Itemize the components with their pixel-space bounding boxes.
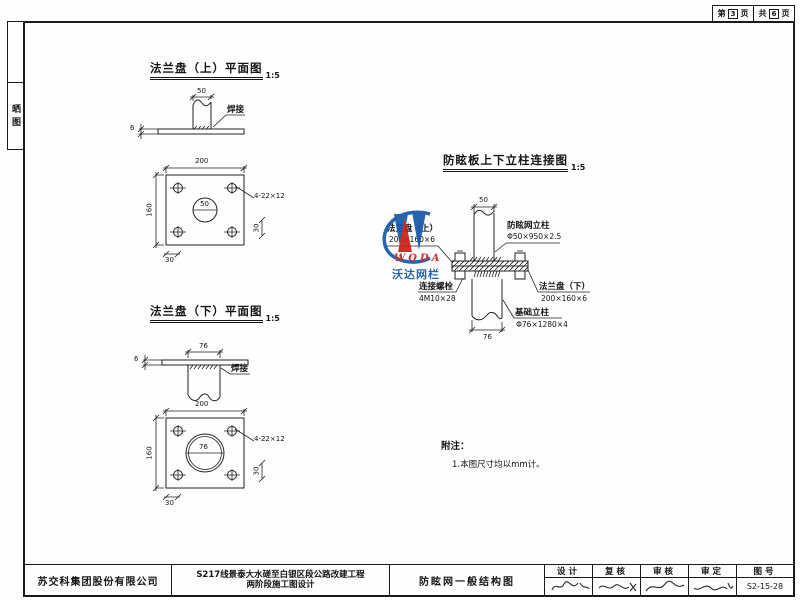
weld-label-top: 焊接 [227, 103, 244, 115]
dim-pipe-76: 76 [199, 342, 208, 350]
post-spec: Φ50×950×2.5 [507, 232, 561, 241]
holes-callout-top: 4-22×12 [254, 192, 285, 200]
flange-lower-spec: 200×160×6 [541, 294, 587, 303]
flange-top-plan-drawing [153, 165, 265, 257]
drawing-number-column: 图号 S2-15-28 [737, 565, 793, 595]
bolt-spec: 4M10×28 [419, 294, 456, 303]
flange-top-title-row: 法兰盘（上）平面图 1:5 [150, 60, 280, 80]
review-header: 审核 [641, 565, 688, 578]
dim-hole-50: 50 [200, 200, 209, 208]
dim-edge-30-hb: 30 [165, 499, 174, 507]
foundation-spec: Φ76×1280×4 [516, 320, 568, 329]
dim-plate-thickness-6b: 6 [134, 355, 138, 363]
design-column: 设计 [545, 565, 593, 595]
signature-check [595, 579, 639, 595]
connection-scale: 1:5 [571, 163, 585, 172]
connection-title: 防眩板上下立柱连接图 [443, 152, 568, 172]
signature-review [643, 579, 687, 595]
flange-bottom-plan-drawing [153, 408, 265, 500]
flange-bottom-scale: 1:5 [266, 314, 280, 323]
weld-label-bottom: 焊接 [231, 362, 248, 374]
notes-heading: 附注： [441, 438, 470, 452]
dim-edge-30-vb: 30 [252, 467, 260, 476]
dim-pipe-top-50: 50 [197, 87, 206, 95]
signature-approve [691, 579, 735, 595]
dim-plan-height-160: 160 [146, 203, 154, 216]
drawing-number-value: S2-15-28 [737, 578, 793, 595]
approve-header: 审定 [689, 565, 736, 578]
design-signature-cell [545, 578, 592, 595]
project-name-cell: S217线景泰大水磋至白银区段公路改建工程 两阶段施工图设计 [172, 565, 390, 595]
flange-top-scale: 1:5 [266, 71, 280, 80]
dim-edge-30-h: 30 [165, 256, 174, 264]
foundation-label: 基础立柱 [515, 306, 549, 318]
line-art [0, 0, 800, 600]
dim-edge-30-v: 30 [252, 224, 260, 233]
dim-plan-width-200b: 200 [195, 400, 208, 408]
check-header: 复核 [593, 565, 640, 578]
watermark-brand-en: WODA [394, 253, 442, 264]
dim-hole-76: 76 [199, 443, 208, 451]
approve-signature-cell [689, 578, 736, 595]
signature-design [547, 579, 591, 595]
flange-top-section-drawing [138, 94, 245, 139]
project-line-1: S217线景泰大水磋至白银区段公路改建工程 [196, 570, 364, 581]
flange-bottom-title: 法兰盘（下）平面图 [150, 303, 263, 323]
flange-top-title: 法兰盘（上）平面图 [150, 60, 263, 80]
company-name: 苏交科集团股份有限公司 [25, 565, 172, 595]
dim-plate-thickness-6: 6 [130, 124, 134, 132]
design-header: 设计 [545, 565, 592, 578]
dim-conn-76: 76 [483, 333, 492, 341]
drawing-number-header: 图号 [737, 565, 793, 578]
drawing-sheet: 晒图 第 3 页 共 6 页 [0, 0, 800, 600]
flange-bottom-title-row: 法兰盘（下）平面图 1:5 [150, 303, 280, 323]
dim-plan-width-200: 200 [195, 157, 208, 165]
dim-plan-height-160b: 160 [146, 446, 154, 459]
check-column: 复核 [593, 565, 641, 595]
drawing-name: 防眩网一般结构图 [390, 565, 545, 595]
review-signature-cell [641, 578, 688, 595]
notes-item-1: 1.本图尺寸均以mm计。 [452, 458, 545, 470]
flange-lower-label: 法兰盘（下） [539, 280, 590, 292]
connection-title-row: 防眩板上下立柱连接图 1:5 [443, 152, 585, 172]
review-column: 审核 [641, 565, 689, 595]
title-block: 苏交科集团股份有限公司 S217线景泰大水磋至白银区段公路改建工程 两阶段施工图… [25, 564, 793, 595]
check-signature-cell [593, 578, 640, 595]
logo-right-triangle-icon [412, 212, 426, 250]
post-label: 防眩网立柱 [507, 219, 550, 231]
flange-bottom-section-drawing [142, 349, 250, 401]
watermark-brand-cn: 沃达网栏 [392, 266, 440, 282]
approve-column: 审定 [689, 565, 737, 595]
dim-conn-50: 50 [479, 196, 488, 204]
watermark-logo: WODA 沃达网栏 [372, 206, 468, 286]
project-line-2: 两阶段施工图设计 [246, 580, 314, 591]
holes-callout-bottom: 4-22×12 [254, 435, 285, 443]
